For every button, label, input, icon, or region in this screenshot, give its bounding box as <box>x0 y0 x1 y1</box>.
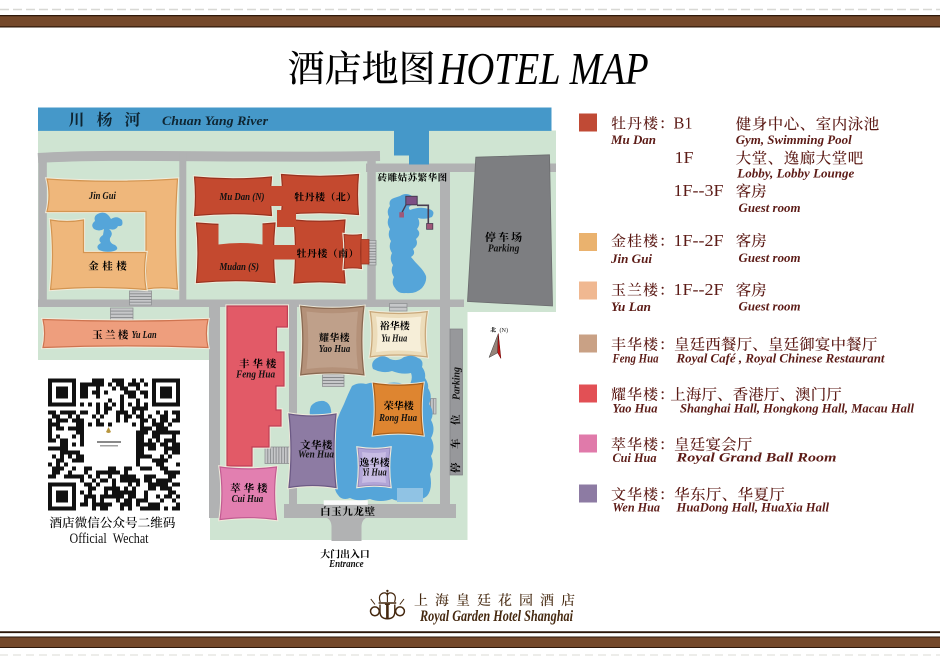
svg-text:Cui Hua: Cui Hua <box>232 494 264 505</box>
svg-text:Feng Hua: Feng Hua <box>612 351 659 366</box>
svg-text:Yu Hua: Yu Hua <box>381 334 407 345</box>
svg-text:Yu Lan: Yu Lan <box>611 299 651 314</box>
svg-text:Yao Hua: Yao Hua <box>613 401 658 416</box>
svg-text:Guest room: Guest room <box>739 299 801 314</box>
svg-text:Yao Hua: Yao Hua <box>319 344 351 355</box>
svg-text:Mu Dan: Mu Dan <box>610 132 656 147</box>
svg-text:HOTEL MAP: HOTEL MAP <box>438 43 649 94</box>
svg-text:1F--2F: 1F--2F <box>674 231 724 250</box>
svg-text:Guest room: Guest room <box>739 250 801 265</box>
svg-text:(N): (N) <box>500 327 509 334</box>
svg-text:Gym, Swimming Pool: Gym, Swimming Pool <box>736 132 852 147</box>
svg-text:Jin Gui: Jin Gui <box>88 191 116 202</box>
svg-text:Lobby, Lobby Lounge: Lobby, Lobby Lounge <box>736 166 854 181</box>
svg-text:Guest room: Guest room <box>739 200 801 215</box>
svg-text:Parking: Parking <box>451 367 462 400</box>
svg-text:Feng Hua: Feng Hua <box>235 369 275 381</box>
svg-text:Wen Hua: Wen Hua <box>613 500 661 515</box>
svg-text:1F--3F: 1F--3F <box>674 181 724 200</box>
svg-text:Entrance: Entrance <box>328 559 364 570</box>
svg-text:Rong Hua: Rong Hua <box>378 413 417 424</box>
svg-text:HuaDong Hall, HuaXia Hall: HuaDong Hall, HuaXia Hall <box>676 500 830 515</box>
svg-text:1F: 1F <box>675 148 694 167</box>
svg-text:Yi Hua: Yi Hua <box>362 468 387 479</box>
svg-text:Royal Café , Royal Chinese Res: Royal Café , Royal Chinese Restaurant <box>676 351 885 366</box>
svg-text:Chuan Yang River: Chuan Yang River <box>162 114 268 128</box>
svg-text:Official Wechat: Official Wechat <box>70 531 149 547</box>
svg-text:Wen Hua: Wen Hua <box>298 450 334 461</box>
svg-text:Jin Gui: Jin Gui <box>610 251 652 266</box>
svg-text:Cui Hua: Cui Hua <box>613 450 657 465</box>
svg-text:Mudan (S): Mudan (S) <box>219 262 259 273</box>
svg-text:Mu Dan (N): Mu Dan (N) <box>219 192 265 203</box>
svg-text:Yu Lan: Yu Lan <box>132 330 157 341</box>
svg-text:Parking: Parking <box>488 243 520 255</box>
svg-text:Royal Garden Hotel Shanghai: Royal Garden Hotel Shanghai <box>419 608 573 625</box>
svg-text:B1: B1 <box>674 114 693 133</box>
svg-text:Shanghai Hall, Hongkong Hall,: Shanghai Hall, Hongkong Hall, Macau Hall <box>680 401 914 416</box>
svg-text:Royal Grand Ball Room: Royal Grand Ball Room <box>675 450 836 465</box>
svg-text:1F--2F: 1F--2F <box>674 280 724 299</box>
